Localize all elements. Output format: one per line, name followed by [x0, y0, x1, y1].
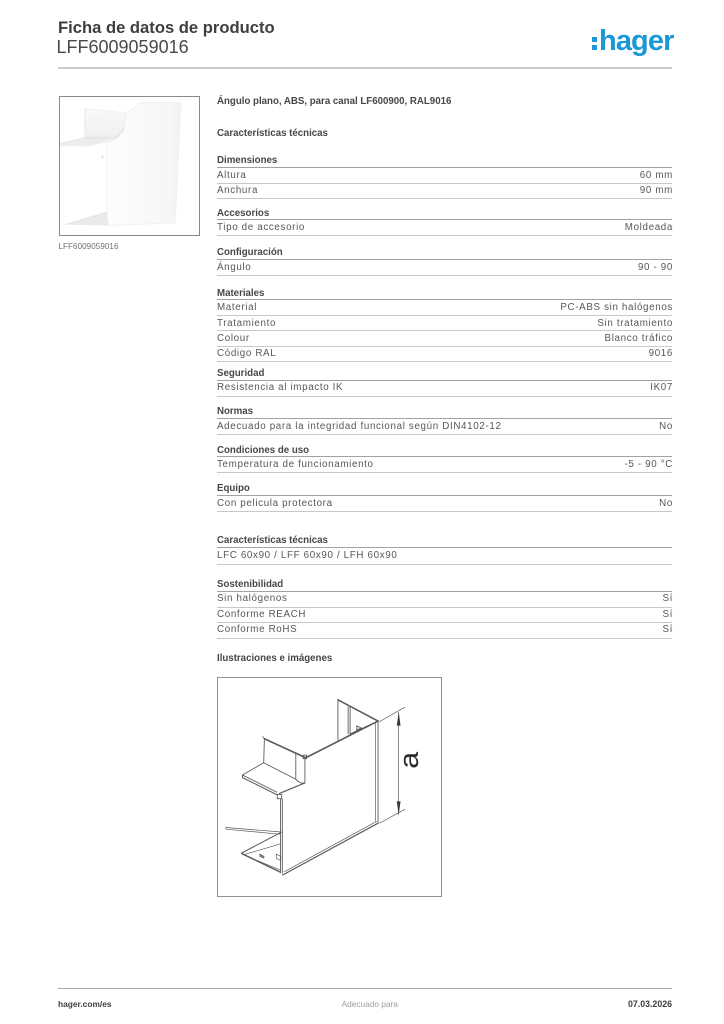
svg-text:a: a [395, 751, 425, 768]
svg-text:hager: hager [599, 25, 674, 57]
